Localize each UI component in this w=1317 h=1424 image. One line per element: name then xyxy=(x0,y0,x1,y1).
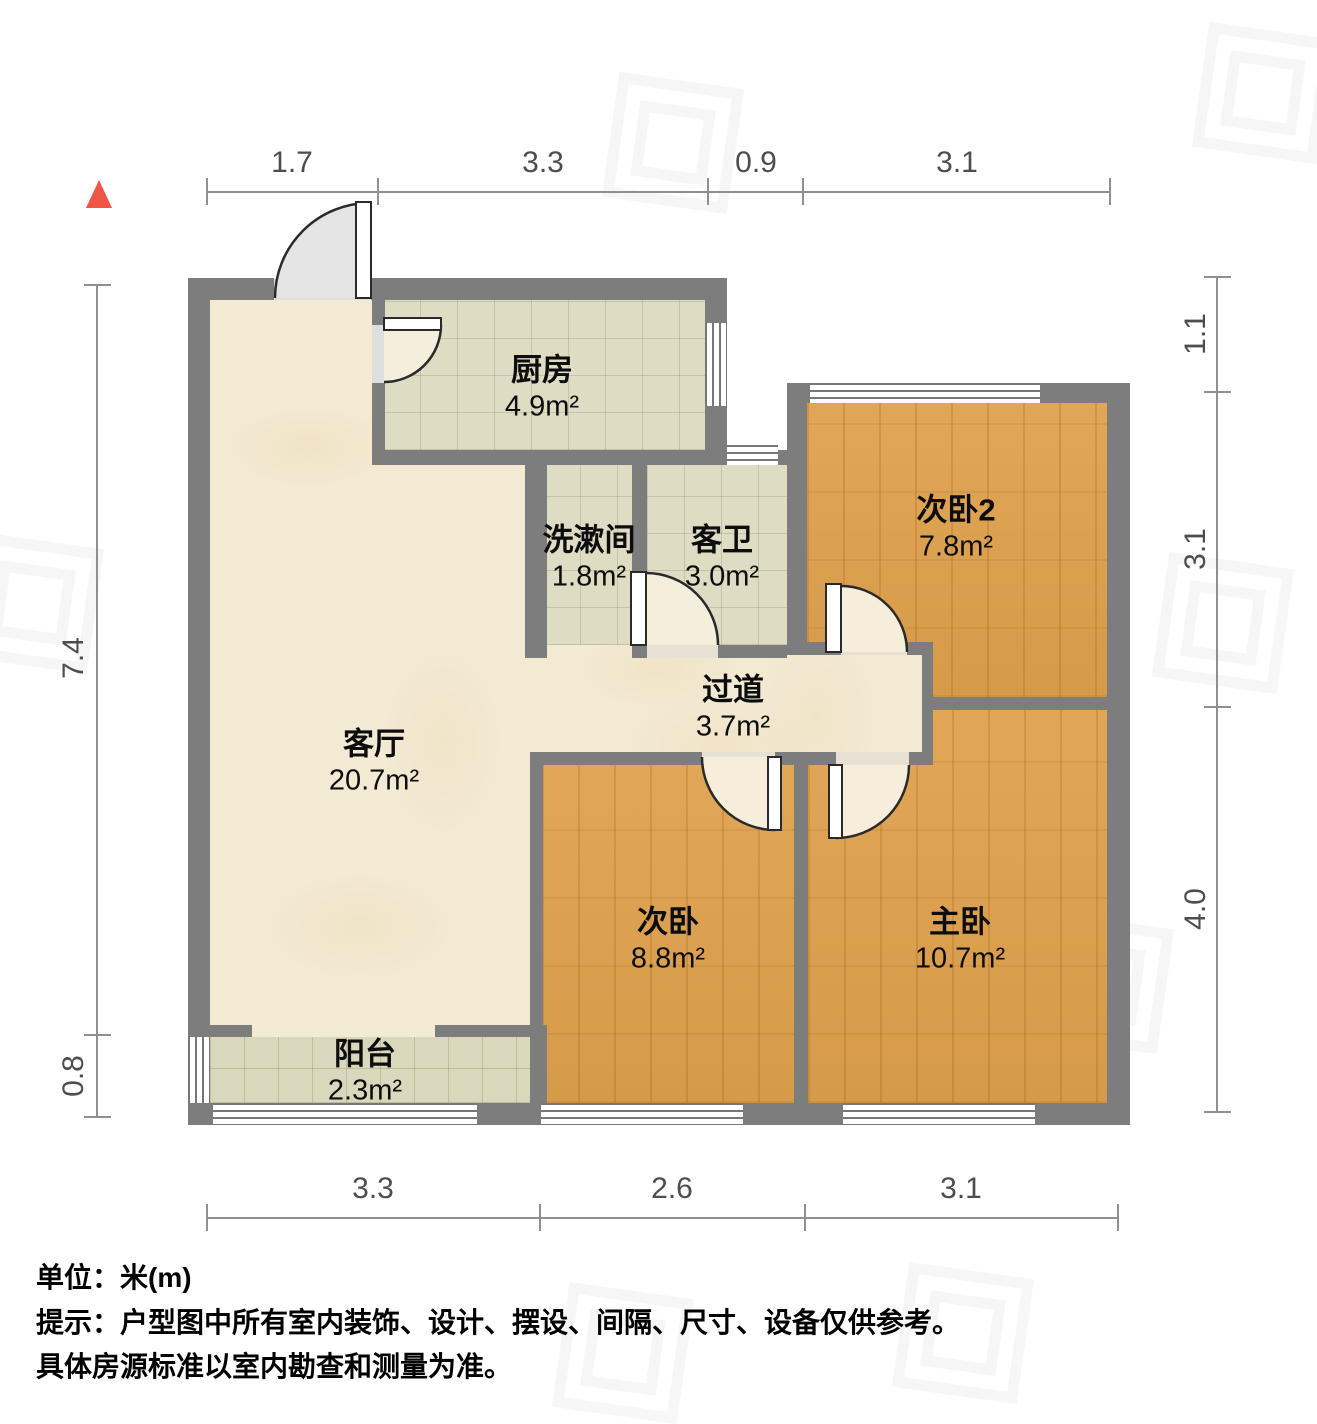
wall-segment xyxy=(372,383,385,465)
wall-segment xyxy=(530,752,702,765)
wall-segment xyxy=(477,1103,541,1125)
room-name: 次卧 xyxy=(631,905,705,942)
wall-segment xyxy=(530,1025,547,1103)
room-area: 1.8m² xyxy=(543,559,636,593)
guest-bath-window xyxy=(727,445,778,465)
dim-line-left xyxy=(96,285,98,1117)
room-name: 主卧 xyxy=(915,905,1005,942)
dim-line-right xyxy=(1216,277,1218,1112)
dim-tick xyxy=(84,284,111,286)
dim-tick xyxy=(539,1204,541,1231)
wall-segment xyxy=(922,655,933,765)
bedroom2-label: 次卧2 7.8m² xyxy=(916,493,995,564)
dim-bottom-2: 2.6 xyxy=(651,1172,693,1206)
dim-top-2: 3.3 xyxy=(522,146,564,180)
room-name: 过道 xyxy=(696,673,770,710)
balcony-side-window xyxy=(188,1037,210,1103)
watermark xyxy=(1152,552,1294,694)
dim-bottom-3: 3.1 xyxy=(940,1172,982,1206)
bedroom-label: 次卧 8.8m² xyxy=(631,905,705,976)
kitchen-window xyxy=(705,323,727,406)
room-area: 8.8m² xyxy=(631,941,705,975)
dim-tick xyxy=(1109,178,1111,205)
washroom-label: 洗漱间 1.8m² xyxy=(543,523,636,594)
dim-tick xyxy=(1204,1111,1231,1113)
hallway-label: 过道 3.7m² xyxy=(696,673,770,744)
bedroom-window xyxy=(541,1103,743,1125)
balcony-label: 阳台 2.3m² xyxy=(328,1037,402,1108)
wall-segment xyxy=(372,300,385,325)
dim-top-3: 0.9 xyxy=(735,146,777,180)
wall-segment xyxy=(209,1025,252,1037)
wall-segment xyxy=(787,383,807,655)
wall-segment xyxy=(794,765,808,1103)
kitchen-label: 厨房 4.9m² xyxy=(505,353,579,424)
dim-left-1: 7.4 xyxy=(57,637,91,679)
wall-segment xyxy=(371,278,727,300)
dim-tick xyxy=(1117,1204,1119,1231)
watermark xyxy=(1192,22,1317,164)
dim-line-top xyxy=(207,191,1110,193)
room-area: 3.0m² xyxy=(685,559,759,593)
wall-segment xyxy=(188,278,210,1037)
dim-bottom-1: 3.3 xyxy=(352,1172,394,1206)
room-area: 4.9m² xyxy=(505,389,579,423)
room-area: 10.7m² xyxy=(915,941,1005,975)
north-triangle-icon xyxy=(86,180,112,208)
dim-tick xyxy=(206,1204,208,1231)
dim-tick xyxy=(1204,706,1231,708)
bedroom-door-opening xyxy=(702,752,775,765)
room-name: 次卧2 xyxy=(916,493,995,530)
wall-segment xyxy=(188,1103,213,1125)
dim-tick xyxy=(1204,276,1231,278)
dim-left-2: 0.8 xyxy=(57,1055,91,1097)
disclaimer-line1: 提示：户型图中所有室内装饰、设计、摆设、间隔、尺寸、设备仅供参考。 xyxy=(36,1301,1276,1341)
wall-segment xyxy=(372,450,727,465)
room-area: 2.3m² xyxy=(328,1073,402,1107)
wall-segment xyxy=(907,642,933,655)
dim-tick xyxy=(804,1204,806,1231)
entry-opening xyxy=(274,279,371,300)
dim-tick xyxy=(802,178,804,205)
room-area: 20.7m² xyxy=(329,763,419,797)
dim-tick xyxy=(84,1034,111,1036)
disclaimer-line2: 具体房源标准以室内勘查和测量为准。 xyxy=(36,1345,1276,1385)
wall-segment xyxy=(632,645,647,658)
master-window xyxy=(843,1103,1035,1125)
dim-tick xyxy=(84,1116,111,1118)
dim-right-3: 4.0 xyxy=(1179,888,1213,930)
guest-bath-label: 客卫 3.0m² xyxy=(685,523,759,594)
kitchen-door-opening xyxy=(372,325,385,383)
master-door-opening xyxy=(836,752,909,765)
bedroom2-window xyxy=(810,383,1040,403)
dim-line-bottom xyxy=(207,1217,1118,1219)
wall-segment xyxy=(718,645,787,658)
dim-right-1: 1.1 xyxy=(1179,313,1213,355)
room-name: 阳台 xyxy=(328,1037,402,1074)
dim-tick xyxy=(206,178,208,205)
wall-segment xyxy=(909,752,933,765)
room-name: 洗漱间 xyxy=(543,523,636,560)
floor-plan: 厨房 4.9m² 洗漱间 1.8m² 客卫 3.0m² 次卧2 7.8m² 过道… xyxy=(0,0,1317,1404)
guest-bath-door-opening xyxy=(646,645,718,658)
bedroom2-door-opening xyxy=(841,642,907,655)
footer-notes: 单位：米(m) 提示：户型图中所有室内装饰、设计、摆设、间隔、尺寸、设备仅供参考… xyxy=(36,1256,1276,1389)
wall-segment xyxy=(787,642,841,655)
wall-segment xyxy=(705,300,727,323)
wall-segment xyxy=(743,1103,843,1125)
dim-top-4: 3.1 xyxy=(936,146,978,180)
living-room-label: 客厅 20.7m² xyxy=(329,727,419,798)
wall-segment xyxy=(1107,383,1130,1125)
room-name: 客卫 xyxy=(685,523,759,560)
room-area: 3.7m² xyxy=(696,709,770,743)
room-name: 客厅 xyxy=(329,727,419,764)
wall-segment xyxy=(435,1025,533,1037)
wall-segment xyxy=(1040,383,1130,403)
wall-segment xyxy=(775,752,836,765)
dim-top-1: 1.7 xyxy=(271,146,313,180)
wall-segment xyxy=(933,697,1107,710)
unit-note: 单位：米(m) xyxy=(36,1256,1276,1296)
dim-tick xyxy=(707,178,709,205)
dim-tick xyxy=(1204,391,1231,393)
master-bedroom-label: 主卧 10.7m² xyxy=(915,905,1005,976)
dim-tick xyxy=(377,178,379,205)
room-area: 7.8m² xyxy=(916,529,995,563)
room-name: 厨房 xyxy=(505,353,579,390)
dim-right-2: 3.1 xyxy=(1179,528,1213,570)
